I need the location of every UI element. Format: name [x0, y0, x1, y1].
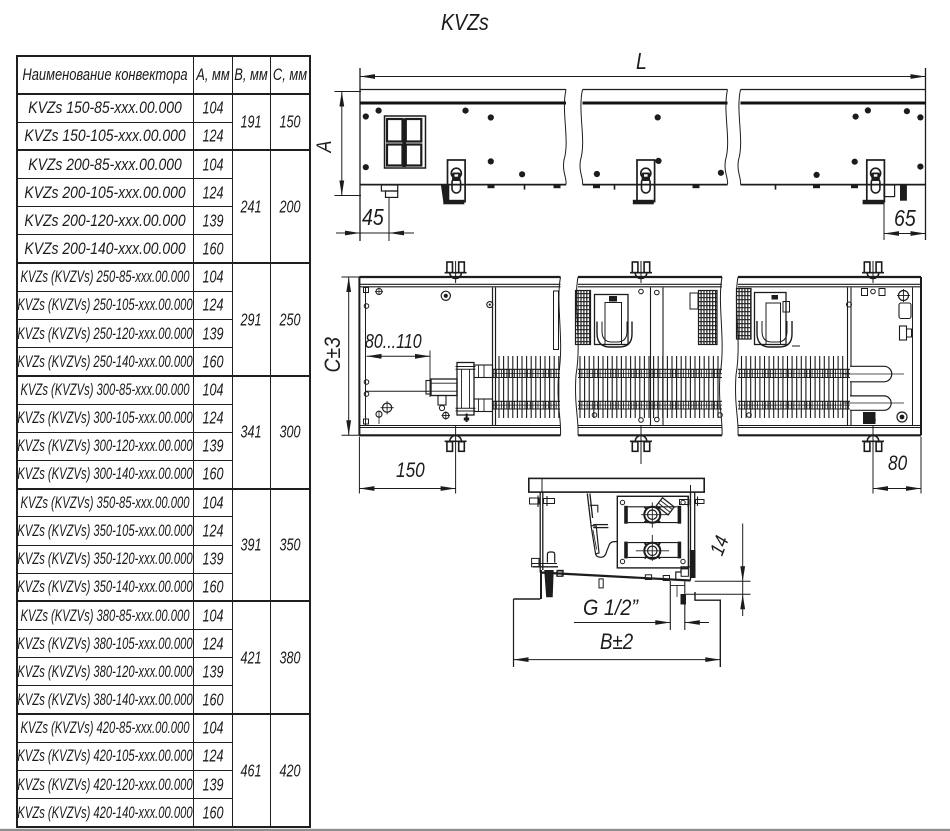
svg-text:150: 150 [396, 460, 425, 483]
svg-text:С±3: С±3 [321, 337, 345, 373]
svg-text:L: L [636, 49, 647, 75]
svg-text:B±2: B±2 [600, 631, 634, 655]
svg-text:14: 14 [705, 532, 733, 558]
svg-text:А: А [313, 141, 337, 154]
svg-text:45: 45 [362, 205, 384, 231]
svg-text:G 1/2”: G 1/2” [583, 596, 639, 620]
svg-text:65: 65 [894, 206, 916, 232]
svg-text:80: 80 [888, 453, 907, 476]
svg-text:80...110: 80...110 [365, 330, 422, 352]
